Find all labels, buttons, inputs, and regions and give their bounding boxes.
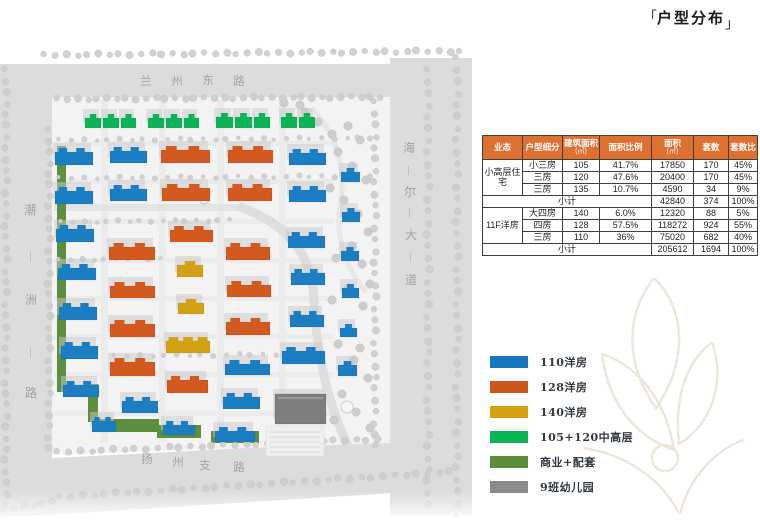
svg-text:兰: 兰: [140, 75, 152, 88]
svg-text:尔: 尔: [404, 184, 416, 199]
table-cell: 57.5%: [600, 220, 652, 232]
building-footprint: [108, 277, 155, 298]
building-footprint: [53, 143, 93, 165]
table-cell: 118272: [652, 220, 694, 232]
unit-distribution-table: 业态户型细分建筑面积(㎡)面积比例面积(㎡)套数套数比 小高层住宅小三房1054…: [482, 135, 758, 256]
svg-text:海: 海: [403, 140, 415, 155]
table-row: 11F洋房大四房1406.0%12320885%: [483, 208, 758, 220]
legend-label: 110洋房: [540, 354, 587, 370]
table-cell: 12320: [652, 208, 694, 220]
building-footprint: [176, 294, 204, 314]
table-cell: 6.0%: [600, 208, 652, 220]
legend-swatch: [490, 431, 528, 443]
column-header: 户型细分: [523, 136, 563, 160]
building-footprint: [226, 141, 273, 163]
building-footprint: [119, 109, 136, 128]
title-text: 户型分布: [657, 7, 725, 28]
building-footprint: [297, 108, 315, 128]
svg-text:州: 州: [172, 456, 184, 469]
table-cell: 100%: [729, 196, 758, 208]
table-cell: 42840: [652, 196, 694, 208]
legend-label: 商业+配套: [540, 454, 596, 470]
title-bracket-close: 」: [725, 13, 739, 33]
subtotal-label: 小计: [483, 244, 652, 256]
table-cell: 135: [563, 184, 600, 196]
table-cell: 9%: [729, 184, 758, 196]
svg-text:支: 支: [199, 459, 211, 472]
table-cell: 20400: [652, 172, 694, 184]
building-footprint: [61, 376, 99, 397]
site-plan-map: 兰州东路潮洲路海尔大道扬州支路: [0, 0, 472, 523]
legend-swatch: [490, 456, 528, 468]
legend-label: 105+120中高层: [540, 429, 633, 445]
table-cell: 110: [563, 232, 600, 244]
business-type-cell: 11F洋房: [483, 208, 523, 244]
building-footprint: [159, 141, 210, 163]
building-footprint: [90, 412, 116, 432]
legend-label: 128洋房: [540, 379, 587, 395]
table-cell: 100%: [729, 244, 758, 256]
table-cell: 40%: [729, 232, 758, 244]
table-row: 三房12047.6%2040017045%: [483, 172, 758, 184]
building-footprint: [108, 142, 147, 163]
title-bracket-open: 「: [643, 7, 657, 27]
table-cell: 120: [563, 172, 600, 184]
svg-text:州: 州: [171, 75, 183, 88]
table-cell: 小三房: [523, 160, 563, 172]
building-footprint: [160, 179, 210, 201]
svg-text:扬: 扬: [141, 452, 153, 466]
legend-item: 105+120中高层: [490, 431, 633, 443]
table-header: 业态户型细分建筑面积(㎡)面积比例面积(㎡)套数套数比: [483, 136, 758, 160]
table-cell: 88: [694, 208, 729, 220]
table-cell: 75020: [652, 232, 694, 244]
building-footprint: [213, 422, 255, 442]
svg-text:路: 路: [25, 385, 37, 400]
table-cell: 47.6%: [600, 172, 652, 184]
table-cell: 170: [694, 160, 729, 172]
svg-text:路: 路: [233, 460, 245, 474]
legend-item: 商业+配套: [490, 456, 633, 468]
legend: 110洋房128洋房140洋房105+120中高层商业+配套9班幼儿园: [490, 356, 633, 493]
table-row: 三房13510.7%4590349%: [483, 184, 758, 196]
legend-label: 9班幼儿园: [540, 479, 594, 495]
column-header: 业态: [483, 136, 523, 160]
table-cell: 34: [694, 184, 729, 196]
building-footprint: [161, 416, 195, 435]
building-footprint: [336, 356, 357, 376]
building-footprint: [280, 342, 325, 364]
table-cell: 41.7%: [600, 160, 652, 172]
business-type-cell: 小高层住宅: [483, 160, 523, 196]
building-footprint: [287, 181, 326, 202]
table-cell: 128: [563, 220, 600, 232]
building-footprint: [225, 276, 271, 297]
page-title: 「 户型分布 」: [643, 7, 739, 28]
legend-swatch: [490, 481, 528, 493]
svg-text:路: 路: [233, 74, 245, 88]
table-cell: 374: [694, 196, 729, 208]
column-header: 建筑面积(㎡): [563, 136, 600, 160]
legend-item: 140洋房: [490, 406, 633, 418]
table-cell: 1694: [694, 244, 729, 256]
column-header: 面积(㎡): [652, 136, 694, 160]
building-footprint: [53, 182, 93, 204]
building-footprint: [59, 337, 98, 359]
table-cell: 45%: [729, 160, 758, 172]
building-footprint: [214, 108, 233, 128]
building-footprint: [338, 319, 357, 337]
building-footprint: [221, 388, 260, 409]
table-cell: 45%: [729, 172, 758, 184]
building-footprint: [223, 355, 270, 375]
table-cell: 140: [563, 208, 600, 220]
building-footprint: [108, 353, 155, 376]
table-cell: 55%: [729, 220, 758, 232]
table-cell: 36%: [600, 232, 652, 244]
building-footprint: [56, 259, 96, 280]
table-row: 三房11036%7502068240%: [483, 232, 758, 244]
legend-item: 110洋房: [490, 356, 633, 368]
table-cell: 大四房: [523, 208, 563, 220]
building-footprint: [175, 256, 203, 277]
table-cell: 924: [694, 220, 729, 232]
building-footprint: [168, 221, 213, 242]
building-footprint: [340, 279, 359, 298]
svg-text:潮: 潮: [24, 202, 36, 217]
building-footprint: [286, 227, 325, 248]
legend-item: 128洋房: [490, 381, 633, 393]
svg-text:大: 大: [405, 228, 417, 242]
table-cell: 17850: [652, 160, 694, 172]
building-footprint: [224, 238, 270, 260]
table-cell: 三房: [523, 184, 563, 196]
legend-swatch: [490, 381, 528, 393]
building-footprint: [54, 220, 94, 242]
legend-label: 140洋房: [540, 404, 587, 420]
kindergarten-footprint: [273, 389, 326, 424]
building-footprint: [339, 242, 359, 261]
column-header: 套数比: [729, 136, 758, 160]
column-header: 套数: [694, 136, 729, 160]
column-header: 面积比例: [600, 136, 652, 160]
building-footprint: [164, 109, 182, 128]
building-footprint: [287, 144, 326, 165]
table-cell: 三房: [523, 232, 563, 244]
svg-text:道: 道: [405, 273, 417, 287]
legend-swatch: [490, 356, 528, 368]
legend-item: 9班幼儿园: [490, 481, 633, 493]
table-row: 四房12857.5%11827292455%: [483, 220, 758, 232]
subtotal-label: 小计: [483, 196, 652, 208]
building-footprint: [83, 109, 101, 128]
building-footprint: [107, 238, 155, 260]
building-footprint: [233, 108, 252, 128]
building-footprint: [226, 179, 272, 201]
building-footprint: [182, 109, 199, 128]
subtotal-row: 小计2056121694100%: [483, 244, 758, 256]
table-cell: 四房: [523, 220, 563, 232]
building-footprint: [252, 108, 270, 128]
building-footprint: [288, 306, 324, 327]
building-footprint: [339, 163, 360, 182]
building-footprint: [146, 109, 164, 128]
building-footprint: [279, 108, 297, 128]
building-footprint: [164, 332, 210, 353]
table-cell: 三房: [523, 172, 563, 184]
building-footprint: [57, 298, 97, 320]
table-cell: 5%: [729, 208, 758, 220]
svg-text:洲: 洲: [25, 293, 37, 307]
table-cell: 205612: [652, 244, 694, 256]
building-footprint: [101, 109, 119, 128]
table-cell: 10.7%: [600, 184, 652, 196]
building-footprint: [289, 264, 325, 285]
table-cell: 105: [563, 160, 600, 172]
svg-text:东: 东: [202, 74, 214, 87]
building-footprint: [165, 371, 208, 393]
subtotal-row: 小计42840374100%: [483, 196, 758, 208]
building-footprint: [120, 392, 158, 413]
table-cell: 170: [694, 172, 729, 184]
building-footprint: [224, 313, 270, 335]
table-cell: 682: [694, 232, 729, 244]
building-footprint: [340, 203, 360, 222]
building-footprint: [108, 180, 147, 201]
table-row: 小高层住宅小三房10541.7%1785017045%: [483, 160, 758, 172]
slide: 兰州东路潮洲路海尔大道扬州支路 「 户型分布 」 业态户型细分建筑面积(㎡)面积…: [0, 0, 760, 523]
table-cell: 4590: [652, 184, 694, 196]
legend-swatch: [490, 406, 528, 418]
building-footprint: [108, 315, 155, 337]
